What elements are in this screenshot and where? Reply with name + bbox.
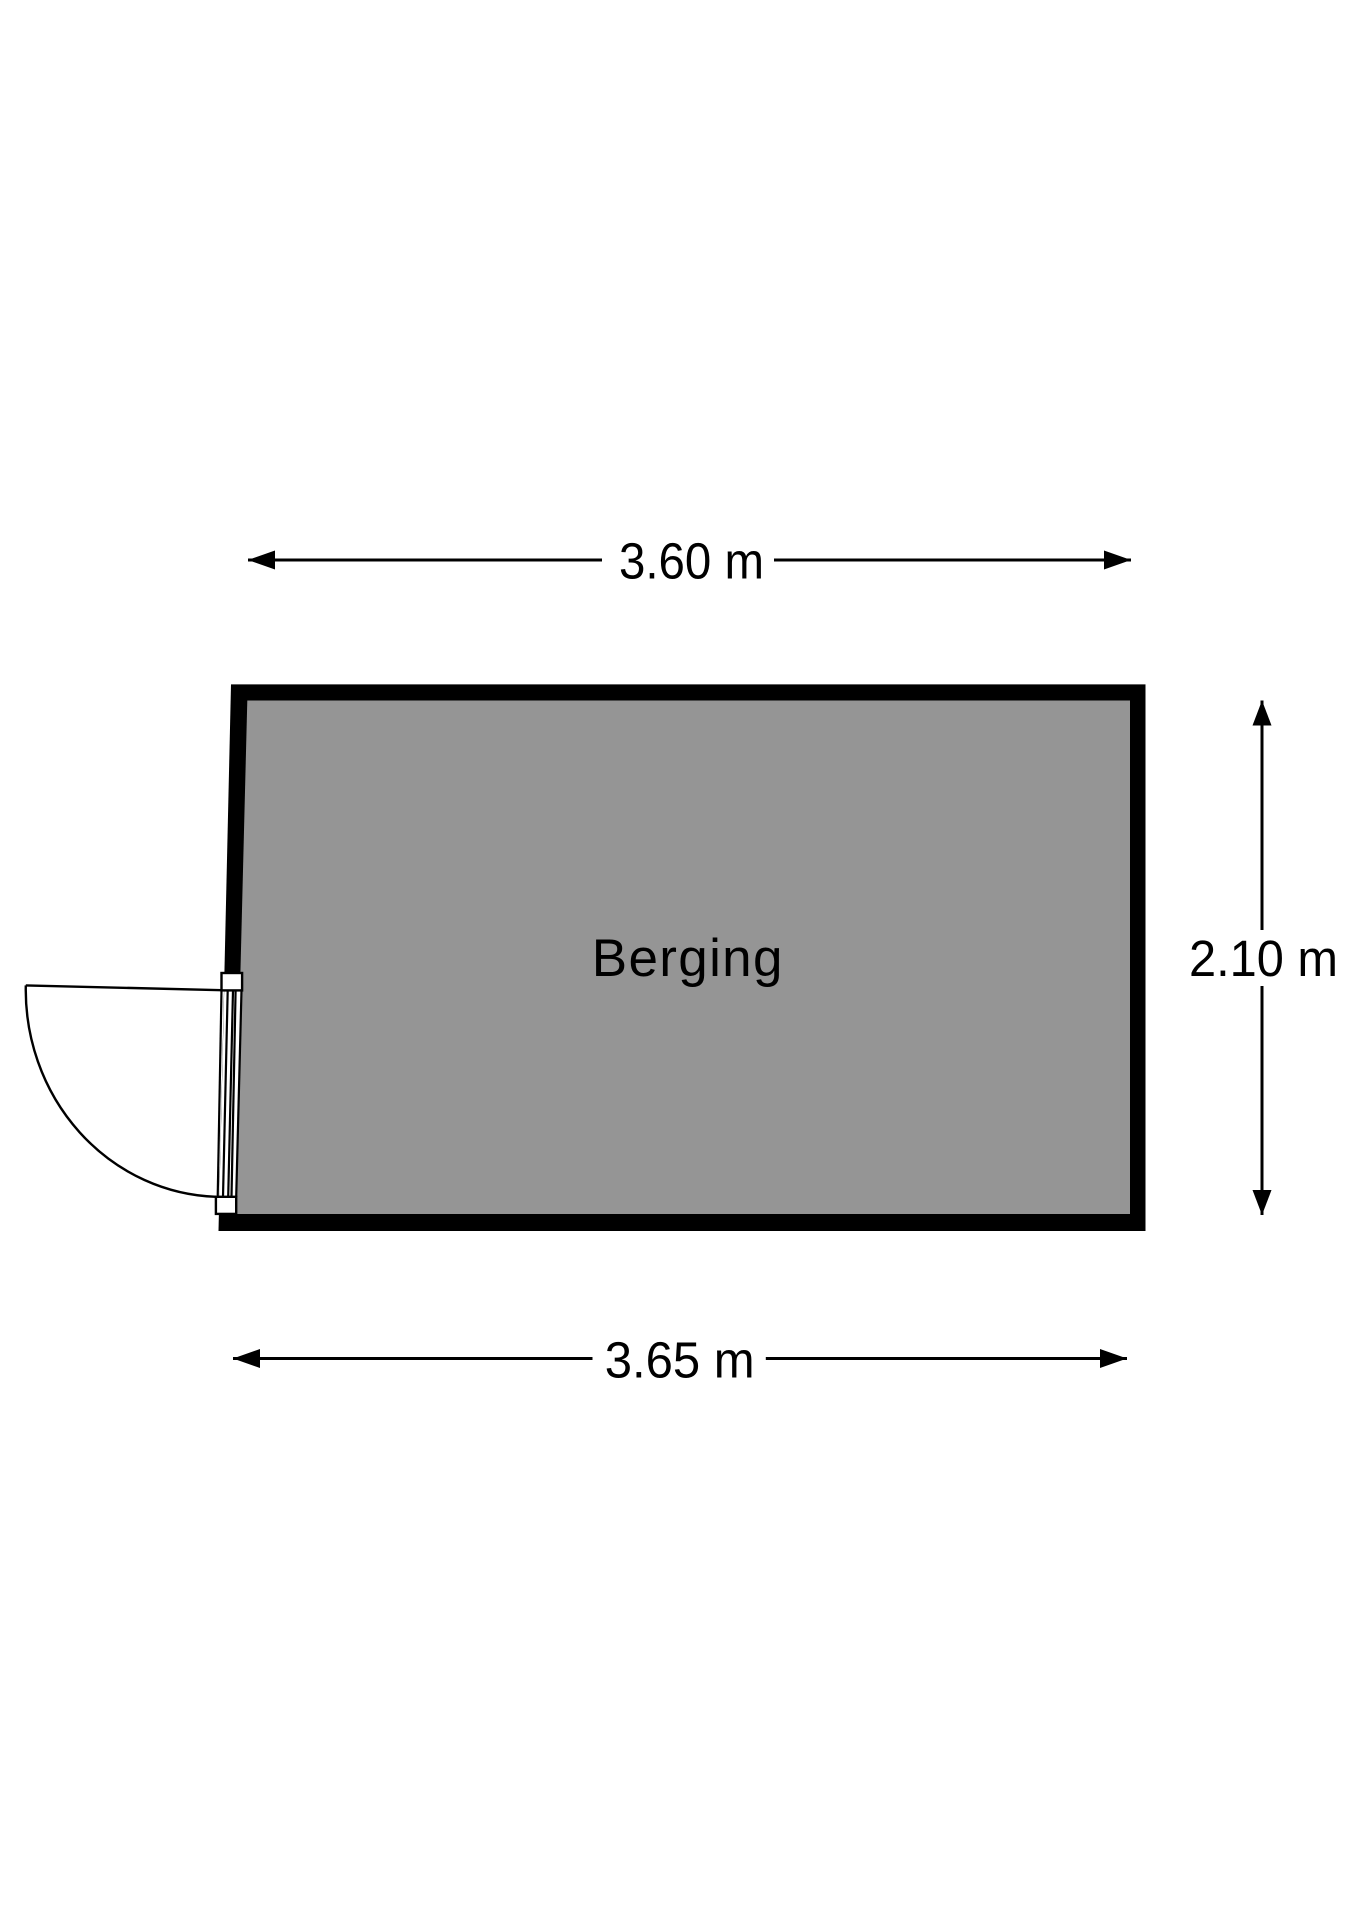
svg-text:3.65 m: 3.65 m xyxy=(605,1331,755,1388)
svg-text:2.10 m: 2.10 m xyxy=(1189,930,1338,987)
svg-text:Berging: Berging xyxy=(592,929,784,988)
svg-text:3.60 m: 3.60 m xyxy=(619,532,764,589)
